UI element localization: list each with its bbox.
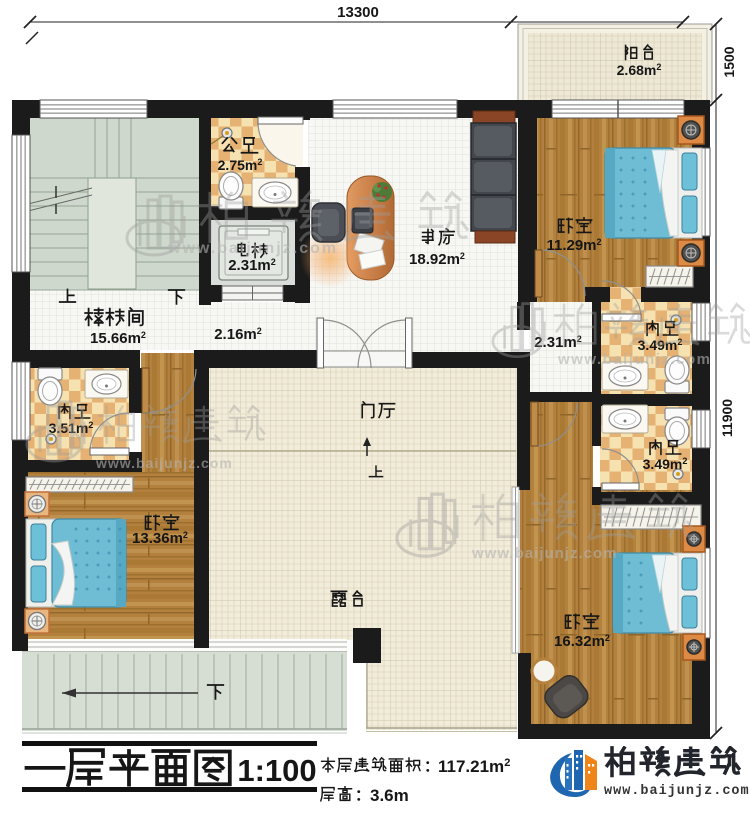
svg-text:：: ： [424,758,439,775]
svg-text:www.baijunjz.com: www.baijunjz.com [604,784,750,799]
svg-text:15.66m2: 15.66m2 [90,330,146,347]
svg-text:2.31m2: 2.31m2 [228,257,276,274]
svg-text:18.92m2: 18.92m2 [409,251,465,268]
svg-text:：: ： [355,787,370,804]
svg-text:2.75m2: 2.75m2 [218,157,263,173]
svg-text:1500: 1500 [721,46,737,77]
svg-text:3.49m2: 3.49m2 [643,456,688,472]
svg-text:11.29m2: 11.29m2 [546,237,601,254]
svg-text:2.68m2: 2.68m2 [617,62,662,78]
svg-text:www.baijunjz.com: www.baijunjz.com [471,545,617,562]
svg-text:16.32m2: 16.32m2 [554,633,610,650]
svg-text:2.16m2: 2.16m2 [214,326,262,343]
svg-text:117.21m2: 117.21m2 [438,757,510,776]
svg-text:1:100: 1:100 [237,753,316,788]
svg-text:13.36m2: 13.36m2 [132,530,188,547]
svg-text:www.baijunjz.com: www.baijunjz.com [557,351,711,368]
svg-text:13300: 13300 [337,4,379,21]
svg-text:www.baijunjz.com: www.baijunjz.com [167,240,338,257]
svg-text:3.6m: 3.6m [370,786,409,805]
svg-text:11900: 11900 [719,399,735,437]
svg-text:www.baijunjz.com: www.baijunjz.com [95,455,233,471]
